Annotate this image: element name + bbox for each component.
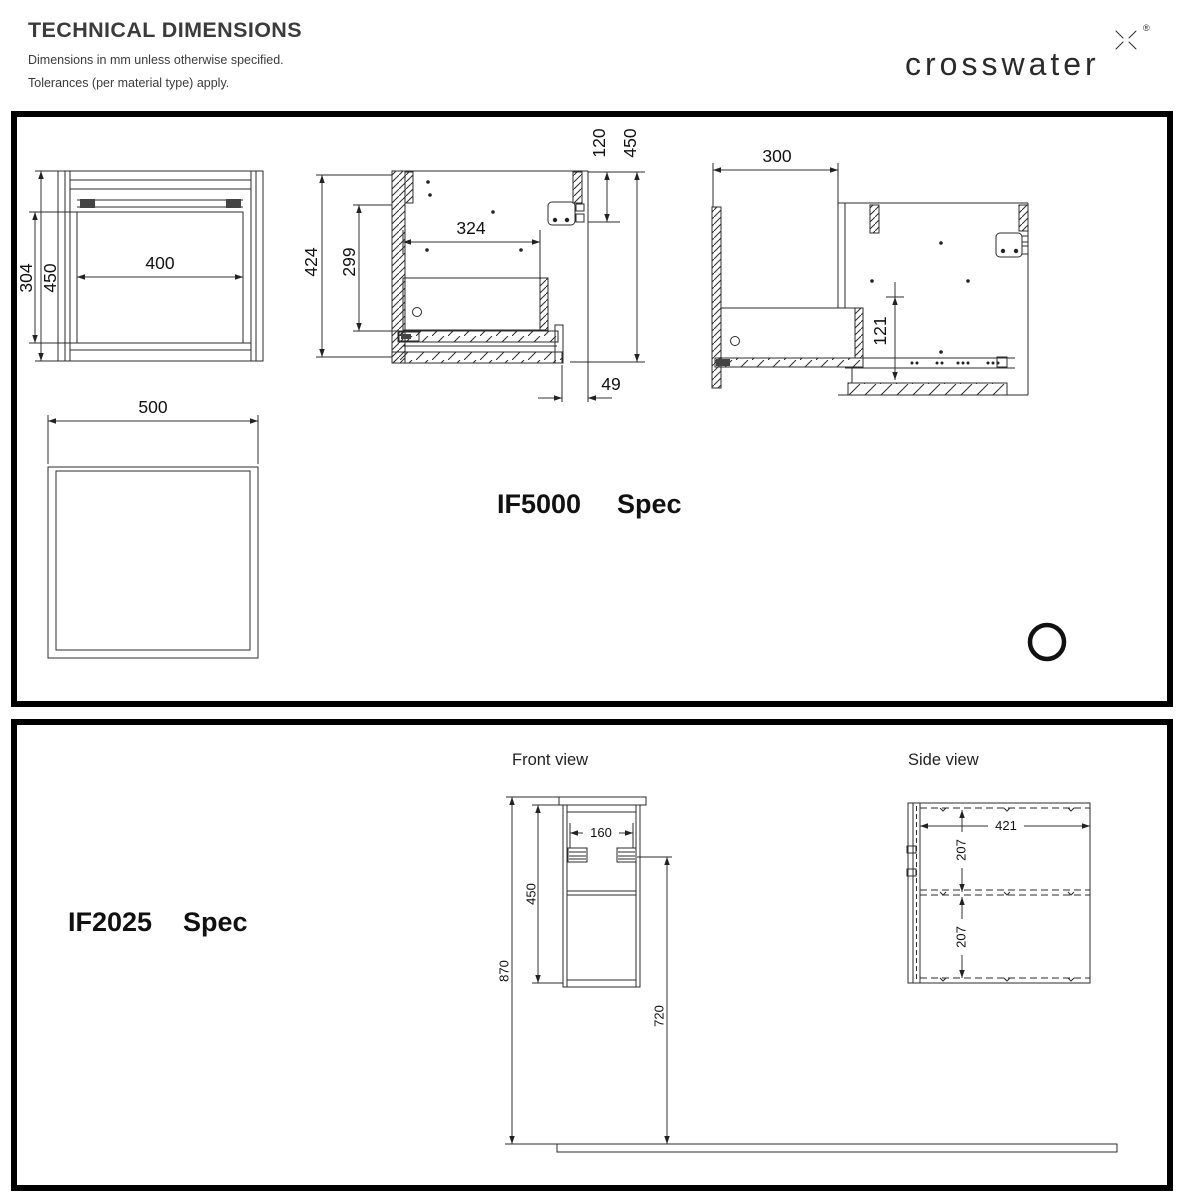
dim-label-304: 304 <box>17 263 36 292</box>
dim-label-500: 500 <box>138 397 167 417</box>
page-title: TECHNICAL DIMENSIONS <box>28 18 302 43</box>
front-view-label: Front view <box>512 751 588 769</box>
dim-front-outer-height: 450 <box>35 171 60 361</box>
dim-label-49: 49 <box>601 374 620 394</box>
brand-wordmark: crosswater <box>905 46 1100 83</box>
dim-cabinet-height: 450 <box>524 805 564 983</box>
crosswater-x-icon <box>1111 26 1141 54</box>
header-note-tolerance: Tolerances (per material type) apply. <box>28 76 229 90</box>
drawer-box <box>403 278 548 330</box>
dim-label-299: 299 <box>339 247 359 276</box>
dim-front-inner-width: 400 <box>77 253 243 277</box>
header-note-units: Dimensions in mm unless otherwise specif… <box>28 53 284 67</box>
dim-lower-section: 207 <box>954 897 969 978</box>
if2025-spec-label: Spec <box>183 907 248 937</box>
circle-marker <box>1030 625 1064 659</box>
if2025-front-view-drawing: 160 450 870 720 <box>497 797 1118 1152</box>
if2025-drawings: Front view Side view IF2025 Spec <box>17 725 1167 1185</box>
dim-label-450-right: 450 <box>620 128 640 157</box>
side-view-label: Side view <box>908 751 979 769</box>
if2025-model-label: IF2025 <box>68 907 152 937</box>
if5000-spec-label: Spec <box>617 489 682 519</box>
dim-label-720: 720 <box>652 1005 667 1027</box>
mount-bracket-right <box>617 848 636 862</box>
crosswater-logo: crosswater ® <box>905 26 1195 86</box>
dim-extended-drop: 121 <box>870 282 904 380</box>
dim-bracket-height: 720 <box>637 857 672 1144</box>
wall-bracket <box>996 233 1022 257</box>
if5000-plan-view-drawing: 500 <box>48 397 258 658</box>
if5000-section-view-drawing: 424 299 324 120 450 <box>301 128 645 402</box>
dim-bracket-spacing: 160 <box>570 823 633 848</box>
dim-extended-wall-offset: 300 <box>713 146 838 207</box>
dim-label-207-lower: 207 <box>954 926 969 948</box>
dim-section-right-height: 450 <box>570 128 645 362</box>
wall-bracket <box>548 202 575 225</box>
if5000-model-label: IF5000 <box>497 489 581 519</box>
slide-rail-rollers <box>911 362 1000 365</box>
dim-overall-height: 870 <box>497 797 560 1144</box>
dim-upper-section: 207 <box>954 810 969 892</box>
dim-plan-width: 500 <box>48 397 258 464</box>
dim-label-120: 120 <box>589 128 609 157</box>
dim-label-300: 300 <box>762 146 791 166</box>
dim-label-450-if2025: 450 <box>524 883 539 905</box>
if5000-panel: 450 304 400 <box>11 111 1173 707</box>
dim-label-324: 324 <box>456 218 485 238</box>
if2025-side-view-drawing: 421 207 207 <box>907 803 1090 983</box>
dim-label-400: 400 <box>145 253 174 273</box>
floor-line <box>505 1144 1117 1152</box>
dim-label-207-upper: 207 <box>954 839 969 861</box>
dim-section-inner-width: 324 <box>403 218 540 278</box>
if2025-panel: Front view Side view IF2025 Spec <box>11 719 1173 1191</box>
dim-label-424: 424 <box>301 247 321 276</box>
dim-label-870: 870 <box>497 960 512 982</box>
dim-label-421: 421 <box>995 818 1017 833</box>
dim-label-160: 160 <box>590 825 612 840</box>
mount-bracket-left <box>568 848 587 862</box>
if5000-drawings: 450 304 400 <box>17 117 1167 701</box>
extended-drawer <box>721 308 863 358</box>
dim-depth: 421 <box>920 818 1090 833</box>
dim-label-121: 121 <box>870 316 890 345</box>
rail-clip-left <box>80 199 95 208</box>
if5000-extended-view-drawing: 300 <box>712 146 1028 395</box>
registered-mark: ® <box>1143 23 1150 33</box>
dim-section-inner-height: 299 <box>339 205 398 331</box>
dim-label-450-front: 450 <box>40 263 60 292</box>
rail-clip-right <box>226 199 241 208</box>
if5000-front-view-drawing: 450 304 400 <box>17 171 263 361</box>
